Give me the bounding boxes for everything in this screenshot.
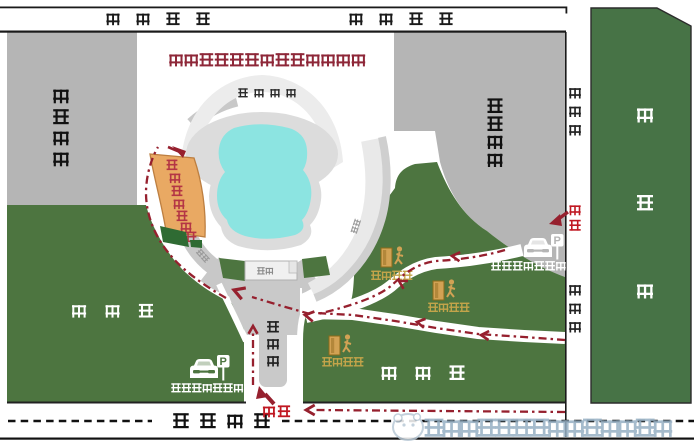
svg-text:P: P: [554, 235, 561, 247]
svg-text:P: P: [220, 356, 227, 368]
